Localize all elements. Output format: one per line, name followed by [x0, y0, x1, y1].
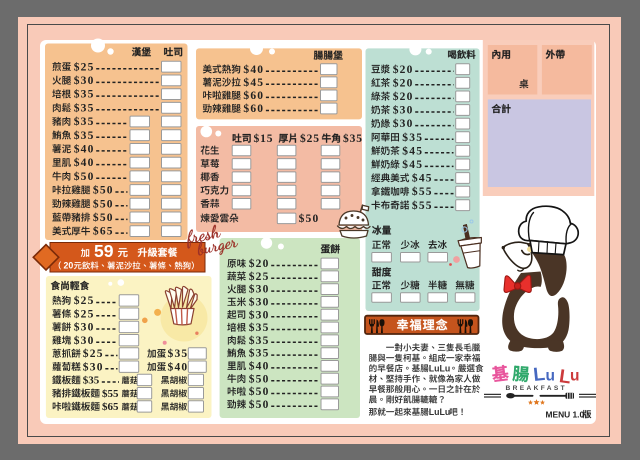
- svg-text:59: 59: [94, 241, 114, 261]
- svg-text:$35: $35: [74, 129, 95, 142]
- svg-text:$40: $40: [249, 360, 270, 373]
- svg-text:$35: $35: [168, 347, 189, 360]
- svg-text:$25: $25: [74, 294, 95, 307]
- svg-text:$35: $35: [343, 132, 363, 145]
- svg-text:$40: $40: [74, 156, 95, 169]
- svg-text:$50: $50: [299, 212, 320, 225]
- svg-text:$25: $25: [83, 347, 104, 360]
- svg-text:$20: $20: [249, 257, 270, 270]
- svg-text:$35: $35: [249, 347, 270, 360]
- svg-text:$40: $40: [74, 143, 95, 156]
- svg-text:$45: $45: [412, 172, 433, 185]
- svg-text:$35: $35: [74, 115, 95, 128]
- svg-text:$50: $50: [249, 372, 270, 385]
- svg-text:$45: $45: [402, 158, 423, 171]
- svg-text:$30: $30: [249, 296, 270, 309]
- svg-text:$25: $25: [300, 132, 320, 145]
- svg-text:$30: $30: [74, 334, 95, 347]
- svg-text:20: 20: [64, 261, 74, 271]
- svg-text:$20: $20: [393, 63, 414, 76]
- svg-text:$60: $60: [243, 102, 264, 115]
- svg-text:$45: $45: [243, 76, 264, 89]
- svg-text:BREAKFAST: BREAKFAST: [506, 385, 567, 392]
- svg-text:$55: $55: [102, 388, 119, 400]
- svg-text:$30: $30: [74, 321, 95, 334]
- svg-text:u: u: [570, 368, 579, 385]
- svg-text:$30: $30: [249, 308, 270, 321]
- svg-text:$50: $50: [74, 170, 95, 183]
- svg-text:$30: $30: [249, 283, 270, 296]
- svg-text:$35: $35: [83, 375, 100, 387]
- svg-text:$55: $55: [412, 185, 433, 198]
- svg-text:$30: $30: [74, 74, 95, 87]
- svg-text:$65: $65: [102, 401, 119, 413]
- svg-text:$30: $30: [393, 104, 414, 117]
- svg-text:$40: $40: [168, 360, 189, 373]
- svg-text:u: u: [546, 368, 555, 385]
- svg-text:$50: $50: [249, 398, 270, 411]
- svg-text:LuLu: LuLu: [429, 407, 451, 417]
- svg-text:$25: $25: [74, 60, 95, 73]
- svg-text:$35: $35: [402, 131, 423, 144]
- svg-text:$35: $35: [74, 101, 95, 114]
- svg-text:$40: $40: [243, 63, 264, 76]
- svg-text:$20: $20: [393, 76, 414, 89]
- svg-text:$45: $45: [402, 144, 423, 157]
- svg-text:$65: $65: [93, 225, 114, 238]
- svg-text:LuLu: LuLu: [429, 363, 451, 373]
- svg-text:$50: $50: [93, 197, 114, 210]
- svg-text:$55: $55: [412, 199, 433, 212]
- svg-text:$30: $30: [83, 360, 104, 373]
- svg-text:$20: $20: [393, 90, 414, 103]
- svg-text:$25: $25: [249, 270, 270, 283]
- svg-text:$50: $50: [249, 385, 270, 398]
- svg-text:$35: $35: [74, 88, 95, 101]
- svg-text:$15: $15: [254, 132, 274, 145]
- svg-text:$60: $60: [243, 89, 264, 102]
- svg-text:$25: $25: [74, 307, 95, 320]
- svg-text:$50: $50: [93, 184, 114, 197]
- svg-text:$30: $30: [393, 117, 414, 130]
- svg-text:$35: $35: [249, 321, 270, 334]
- svg-text:MENU 1.0: MENU 1.0: [546, 410, 585, 420]
- svg-text:$50: $50: [93, 211, 114, 224]
- svg-text:$35: $35: [249, 334, 270, 347]
